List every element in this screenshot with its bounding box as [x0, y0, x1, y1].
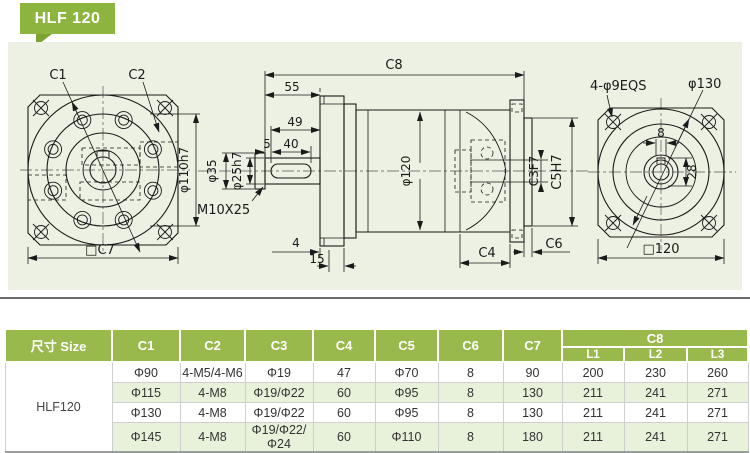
right-key8-label: 8 — [657, 126, 665, 140]
side-c3f7-label: C3F7 — [527, 156, 541, 187]
cell: Φ90 — [112, 362, 180, 383]
col-header-size: 尺寸 Size — [5, 329, 112, 362]
cell: 4-M8 — [180, 383, 245, 403]
spec-table: 尺寸 Size C1 C2 C3 C4 C5 C6 C7 C8 L1 L2 L3… — [4, 328, 749, 453]
side-c8-label: C8 — [385, 58, 402, 73]
cell: 4-M5/4-M6 — [180, 362, 245, 383]
col-header-c3: C3 — [245, 329, 313, 362]
cell: 211 — [562, 403, 624, 423]
side-5-label: 5 — [263, 137, 271, 151]
cell: 8 — [438, 383, 503, 403]
model-badge-label: HLF 120 — [35, 10, 101, 28]
side-49-label: 49 — [287, 115, 302, 129]
cell: 241 — [624, 403, 687, 423]
cell: Φ95 — [375, 403, 438, 423]
side-thread-label: M10X25 — [197, 203, 250, 218]
right-holes-label: 4-φ9EQS — [590, 79, 647, 94]
side-15-label: 15 — [309, 252, 324, 266]
side-4-label: 4 — [292, 236, 300, 250]
side-c4-label: C4 — [478, 246, 495, 261]
side-55-label: 55 — [284, 80, 299, 94]
col-header-c1: C1 — [112, 329, 180, 362]
cell: 60 — [313, 383, 375, 403]
cell: Φ19 — [245, 362, 313, 383]
col-header-l3: L3 — [687, 347, 748, 362]
model-badge: HLF 120 — [20, 3, 115, 34]
right-28-label: 28 — [685, 164, 699, 179]
right-square-label: □120 — [642, 242, 679, 257]
left-pilot-dia-label: φ110h7 — [177, 147, 191, 193]
side-c5h7-label: C5H7 — [550, 154, 565, 189]
cell: Φ19/Φ22 — [245, 383, 313, 403]
right-dia130-label: φ130 — [688, 77, 721, 92]
cell: 130 — [503, 383, 562, 403]
cell: 8 — [438, 362, 503, 383]
cell: 271 — [687, 383, 748, 403]
side-c6-label: C6 — [545, 237, 562, 252]
col-header-c7: C7 — [503, 329, 562, 362]
side-dia120-label: φ120 — [399, 156, 413, 187]
cell: 47 — [313, 362, 375, 383]
drawing-panel: C1 C2 φ110h7 □C7 C8 55 49 5 40 φ35 φ25h7… — [8, 42, 742, 290]
cell: Φ70 — [375, 362, 438, 383]
cell: 90 — [503, 362, 562, 383]
cell: 241 — [624, 383, 687, 403]
cell: Φ115 — [112, 383, 180, 403]
cell: 211 — [562, 383, 624, 403]
cell: 230 — [624, 362, 687, 383]
left-square-label: □C7 — [85, 243, 115, 258]
technical-drawing: C1 C2 φ110h7 □C7 C8 55 49 5 40 φ35 φ25h7… — [8, 42, 742, 290]
cell: 130 — [503, 403, 562, 423]
side-dia25-label: φ25h7 — [230, 152, 244, 190]
model-cell: HLF120 — [5, 362, 112, 452]
cell: 60 — [313, 403, 375, 423]
col-header-c6: C6 — [438, 329, 503, 362]
cell: 4-M8 — [180, 403, 245, 423]
side-40-label: 40 — [283, 137, 298, 151]
table-row: HLF120 Φ90 4-M5/4-M6 Φ19 47 Φ70 8 90 200… — [5, 362, 748, 383]
cell: 8 — [438, 403, 503, 423]
section-divider — [0, 297, 750, 299]
col-header-c8: C8 — [562, 329, 748, 347]
left-c1-label: C1 — [49, 68, 66, 83]
table-row: Φ130 4-M8 Φ19/Φ22 60 Φ95 8 130 211 241 2… — [5, 403, 748, 423]
col-header-c5: C5 — [375, 329, 438, 362]
cell: 200 — [562, 362, 624, 383]
side-dia35-label: φ35 — [205, 159, 219, 182]
cell: 260 — [687, 362, 748, 383]
table-row: Φ115 4-M8 Φ19/Φ22 60 Φ95 8 130 211 241 2… — [5, 383, 748, 403]
left-c2-label: C2 — [128, 68, 145, 83]
cell: Φ130 — [112, 403, 180, 423]
cell: Φ19/Φ22 — [245, 403, 313, 423]
col-header-l2: L2 — [624, 347, 687, 362]
col-header-c2: C2 — [180, 329, 245, 362]
cell: Φ95 — [375, 383, 438, 403]
cell: 271 — [687, 403, 748, 423]
col-header-c4: C4 — [313, 329, 375, 362]
col-header-l1: L1 — [562, 347, 624, 362]
